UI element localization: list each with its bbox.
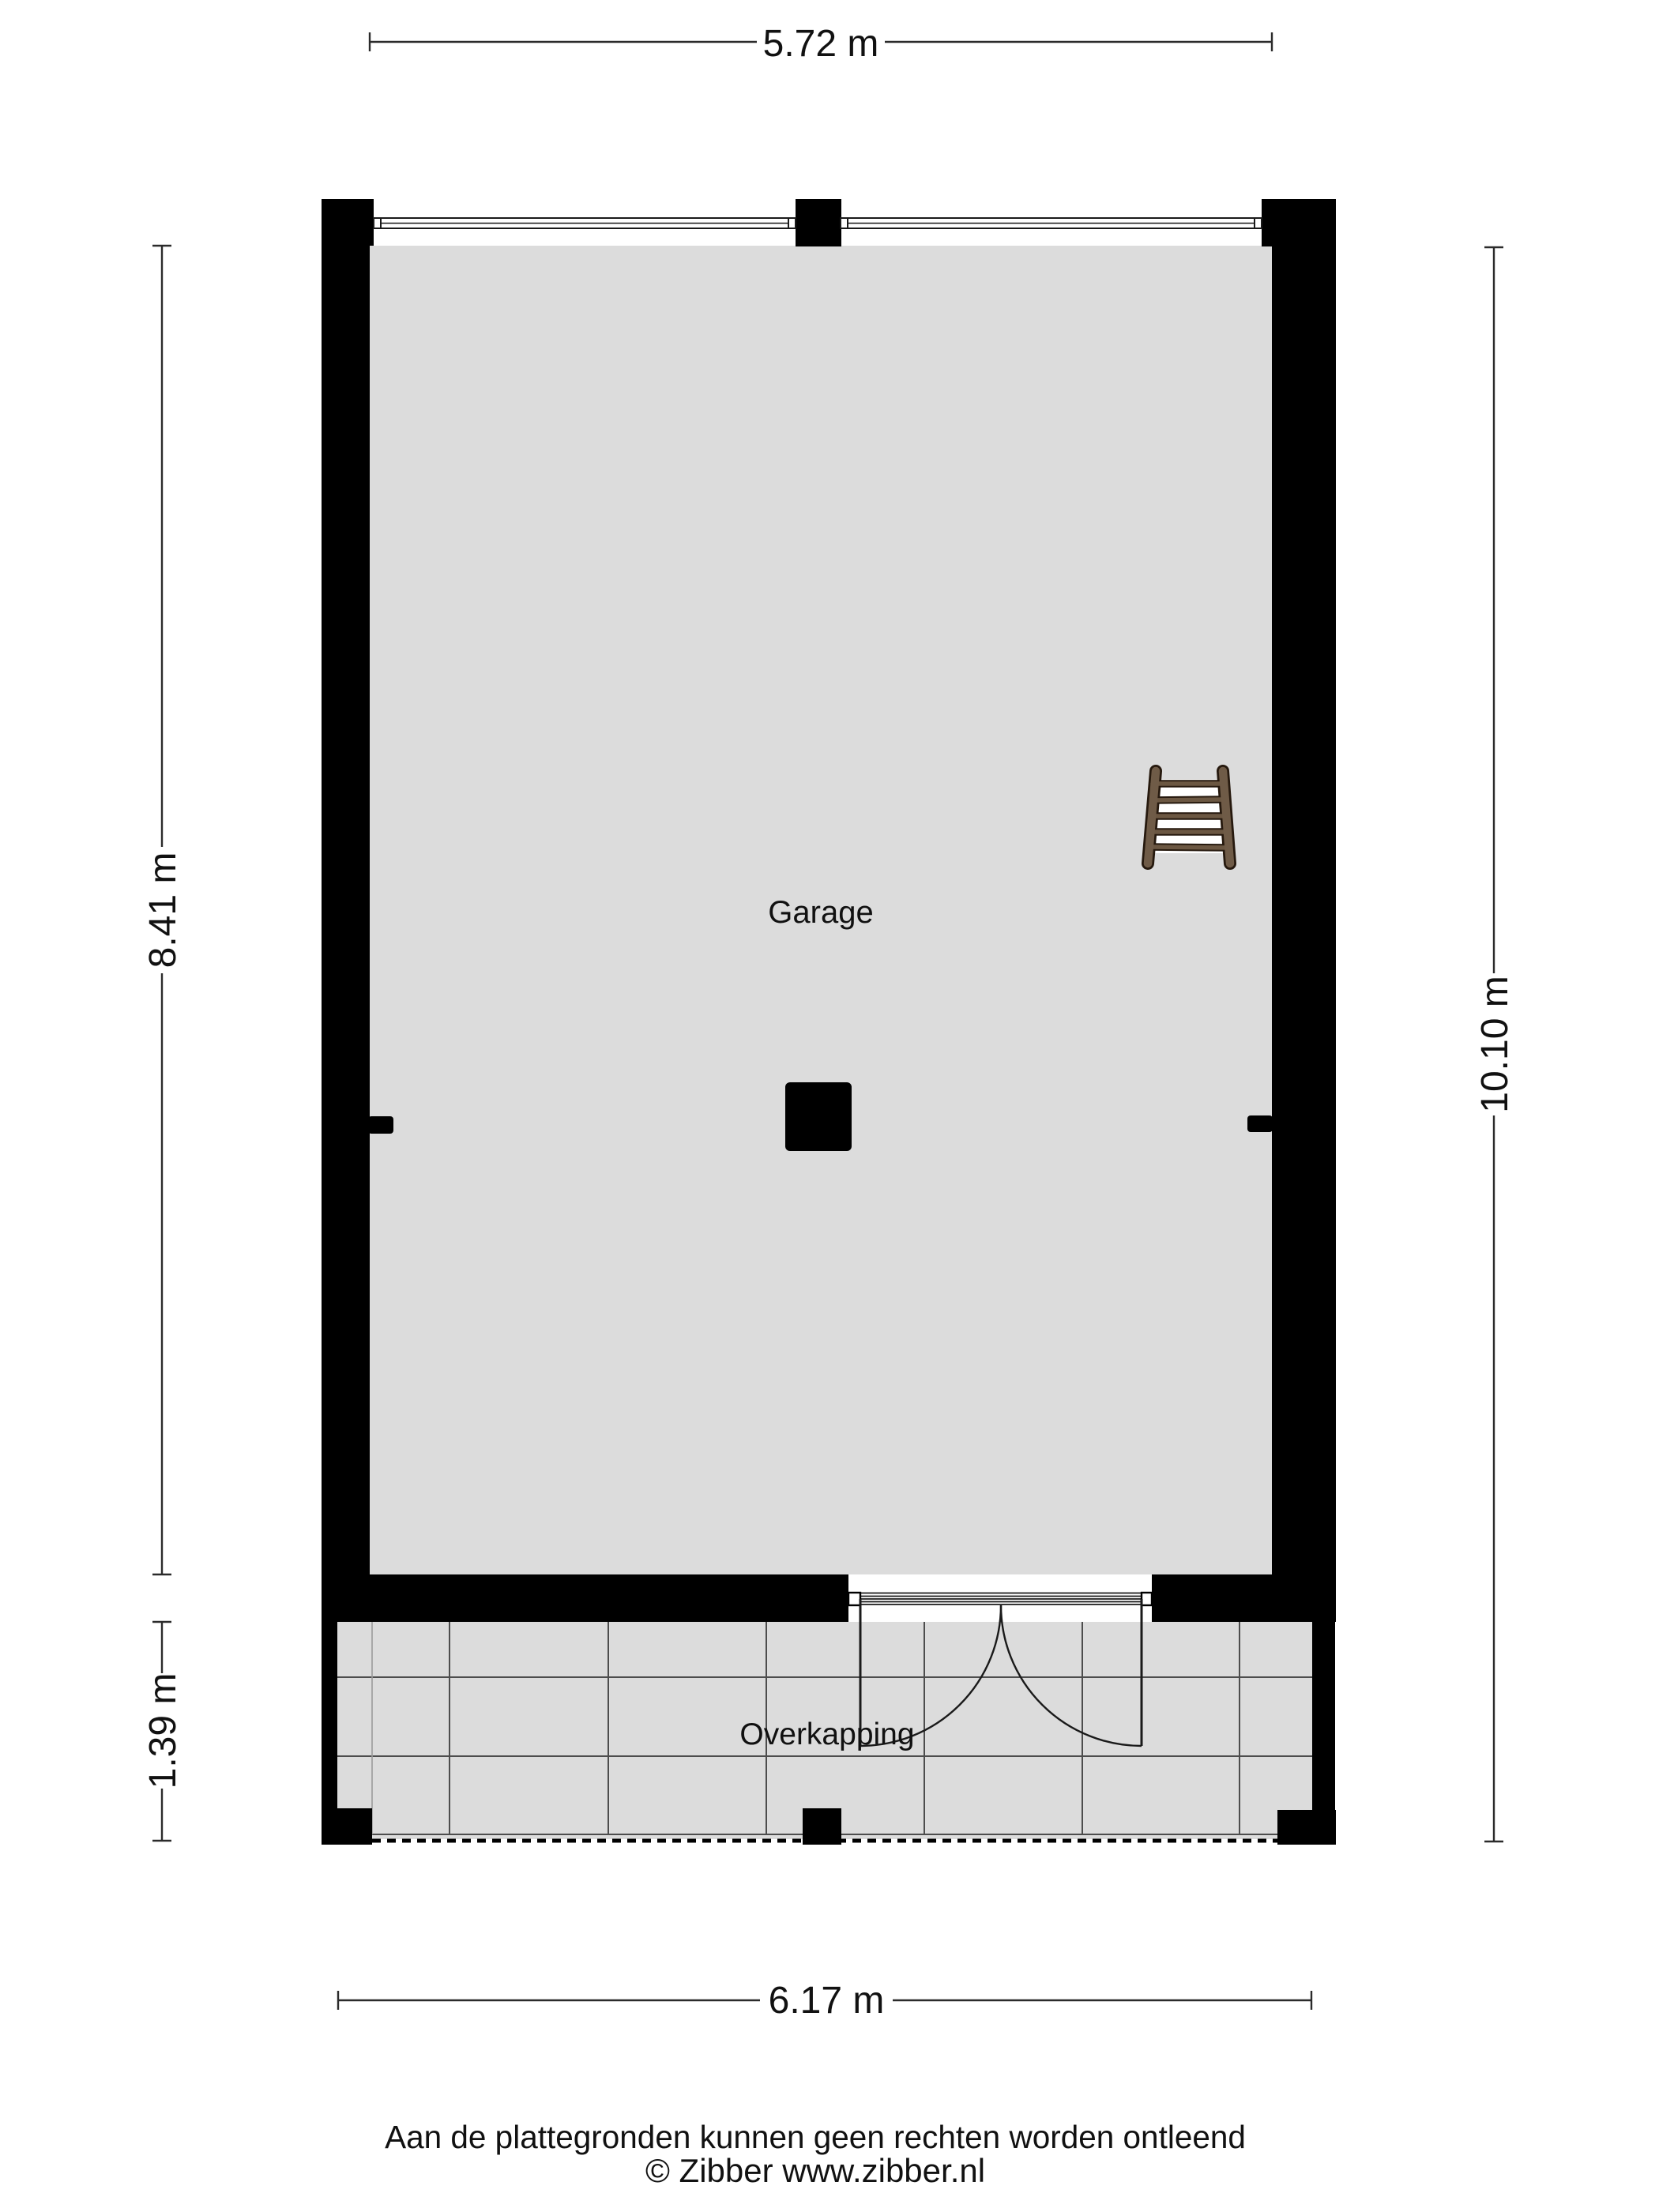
svg-text:© Zibber www.zibber.nl: © Zibber www.zibber.nl xyxy=(645,2152,985,2189)
svg-text:Garage: Garage xyxy=(768,895,873,930)
svg-text:Aan de plattegronden kunnen ge: Aan de plattegronden kunnen geen rechten… xyxy=(385,2119,1246,2155)
svg-text:6.17 m: 6.17 m xyxy=(769,1980,885,2022)
svg-text:Overkapping: Overkapping xyxy=(739,1717,914,1751)
svg-text:5.72 m: 5.72 m xyxy=(763,23,879,65)
svg-text:1.39 m: 1.39 m xyxy=(142,1673,184,1789)
svg-text:8.41 m: 8.41 m xyxy=(142,852,184,969)
svg-text:10.10 m: 10.10 m xyxy=(1474,976,1516,1112)
